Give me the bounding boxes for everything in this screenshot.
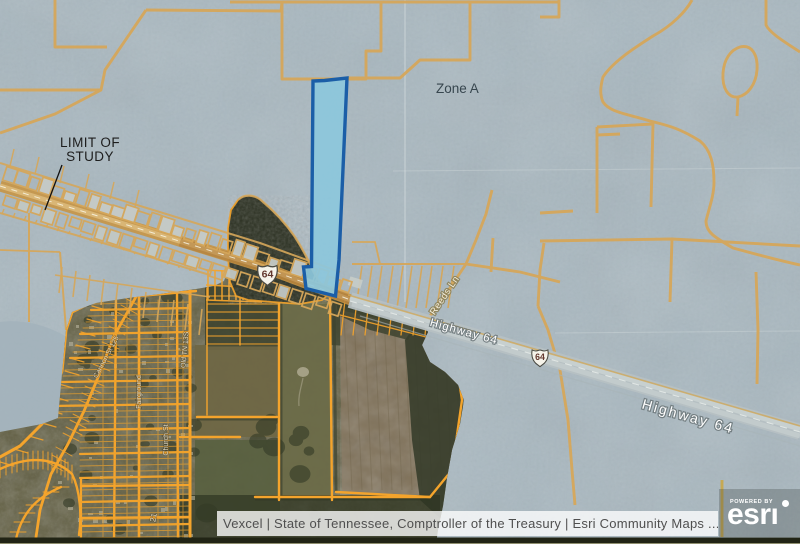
svg-text:21: 21 <box>148 512 159 523</box>
svg-text:LIMIT OF: LIMIT OF <box>60 135 120 150</box>
svg-text:Church St: Church St <box>163 424 170 455</box>
svg-text:Zone A: Zone A <box>436 81 479 96</box>
svg-text:Highway 64: Highway 64 <box>428 317 499 347</box>
svg-text:Old TN 13S: Old TN 13S <box>180 331 190 368</box>
svg-text:Cannon St 125: Cannon St 125 <box>93 335 121 380</box>
svg-text:Fairground: Fairground <box>136 375 143 409</box>
svg-text:Reeds Ln: Reeds Ln <box>428 274 462 317</box>
svg-text:Highway 64: Highway 64 <box>640 396 736 437</box>
svg-text:STUDY: STUDY <box>66 149 114 164</box>
